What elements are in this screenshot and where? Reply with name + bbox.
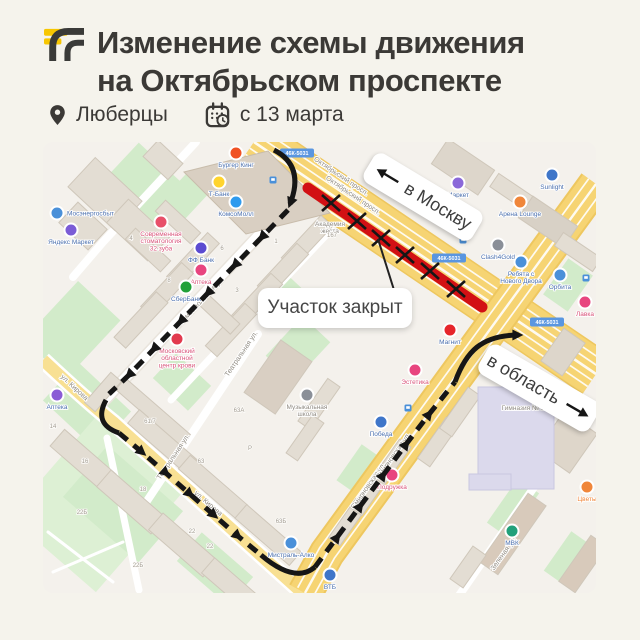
svg-text:Аптека: Аптека [191,279,212,286]
svg-text:Победа: Победа [370,430,393,438]
svg-text:Аптека: Аптека [47,404,68,411]
svg-text:Лавка: Лавка [576,311,594,318]
svg-text:22: 22 [189,529,196,535]
title-line-1: Изменение схемы движения [97,24,617,62]
svg-text:18: 18 [140,487,147,493]
svg-text:Бургер Кинг: Бургер Кинг [218,162,254,169]
closed-section-label: Участок закрыт [267,297,402,319]
svg-text:Подружка: Подружка [377,484,407,491]
svg-text:14: 14 [50,424,57,430]
svg-text:Арена Lounge: Арена Lounge [499,211,542,218]
svg-text:МВК: МВК [505,540,519,547]
svg-text:Мосэнергосбыт: Мосэнергосбыт [67,210,114,218]
svg-text:Цветы: Цветы [577,496,596,503]
svg-text:Sunlight: Sunlight [540,184,564,191]
location-pin-icon [48,102,67,128]
svg-text:Т-Банк: Т-Банк [209,191,230,198]
svg-text:46К-5031: 46К-5031 [437,256,460,262]
svg-text:167: 167 [327,233,338,239]
arrow-right-icon [562,398,592,422]
svg-text:61/7: 61/7 [144,419,156,425]
svg-text:Орбита: Орбита [549,283,572,291]
closed-section-callout: Участок закрыт [258,288,412,328]
title-line-2: на Октябрьском проспекте [97,62,617,100]
svg-text:ВТБ: ВТБ [324,584,336,591]
transport-logo-icon [44,21,84,61]
svg-text:Мистраль-Алко: Мистраль-Алко [268,552,315,559]
svg-text:63Б: 63Б [276,519,287,525]
svg-text:Яндекс Маркет: Яндекс Маркет [48,239,94,246]
svg-text:Московскийобластнойцентр крови: Московскийобластнойцентр крови [159,347,196,369]
svg-text:Clash4Gold: Clash4Gold [481,254,515,261]
svg-text:Р: Р [248,446,252,452]
svg-text:16: 16 [82,459,89,465]
map-image: 46К-503146К-503146К-5031 Октябрьский про… [43,142,596,593]
calendar-icon [204,102,231,129]
svg-text:22Б: 22Б [77,510,88,516]
svg-text:СберБанк: СберБанк [171,295,201,303]
svg-text:КомсоМолл: КомсоМолл [218,211,254,218]
svg-text:63А: 63А [234,408,245,414]
svg-text:22: 22 [207,544,214,550]
svg-text:46К-5031: 46К-5031 [535,320,558,326]
svg-text:Магнит: Магнит [439,339,461,346]
meta-row: Люберцы с 13 марта [48,101,344,129]
arrow-left-icon [373,164,403,189]
svg-text:46К-5031: 46К-5031 [285,151,308,157]
start-date-label: с 13 марта [240,103,344,127]
location-label: Люберцы [76,103,168,127]
svg-text:22Б: 22Б [133,563,144,569]
page-title: Изменение схемы движения на Октябрьском … [97,24,617,100]
svg-text:Эстетика: Эстетика [401,379,429,386]
svg-text:63: 63 [198,459,205,465]
